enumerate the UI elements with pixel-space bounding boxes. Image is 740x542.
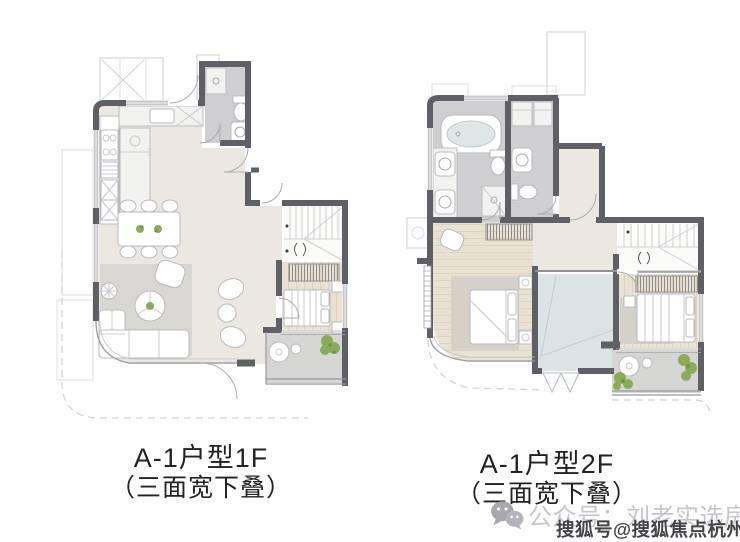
plan-2f-drawing	[407, 32, 710, 412]
corridor-floor	[533, 222, 623, 272]
closet-2f	[486, 224, 532, 240]
shower-icon	[206, 68, 226, 94]
kitchen-counter	[119, 106, 203, 126]
ac-platform-box	[100, 58, 163, 102]
bed2	[637, 294, 695, 342]
bed-1f	[284, 290, 330, 326]
bathtub-icon	[441, 115, 501, 153]
void-floor	[538, 274, 614, 371]
plan-1f-dining-set	[118, 200, 180, 258]
wardrobe-1f	[289, 264, 339, 281]
louver-window	[424, 266, 431, 328]
double-vanity-icon	[433, 148, 457, 218]
toilet-icon	[511, 184, 537, 200]
fridge-icon	[101, 180, 118, 220]
balcony-stool	[291, 344, 301, 354]
balcony-table	[269, 342, 289, 362]
plan-1f-subtitle: （三面宽下叠）	[86, 474, 316, 503]
dining-table	[118, 212, 180, 246]
plan-1f-living-set	[99, 258, 192, 358]
hall-floor	[556, 148, 602, 222]
french-doors	[543, 373, 579, 392]
floor-lamp-icon	[101, 283, 117, 299]
plan-1f-drawing	[57, 55, 348, 418]
coffee-table	[135, 291, 165, 321]
plan-1f-caption: A-1户型1F （三面宽下叠）	[86, 444, 316, 503]
wardrobe-2f	[636, 276, 698, 292]
shower-icon	[482, 186, 506, 216]
sohu-watermark: 搜狐号@搜狐焦点杭州站	[556, 516, 740, 542]
floorplan-image: A-1户型1F （三面宽下叠） A-1户型2F （三面宽下叠） 公众号：刘老实选…	[0, 0, 740, 542]
master-bed	[470, 290, 518, 344]
plan-2f-title: A-1户型2F	[432, 450, 662, 478]
toilet-icon	[490, 150, 506, 175]
balcony2-stool	[642, 358, 652, 368]
sink-icon	[512, 148, 532, 172]
wechat-icon	[490, 500, 524, 530]
stove-icon	[101, 130, 118, 160]
plan-1f-title: A-1户型1F	[86, 444, 316, 472]
